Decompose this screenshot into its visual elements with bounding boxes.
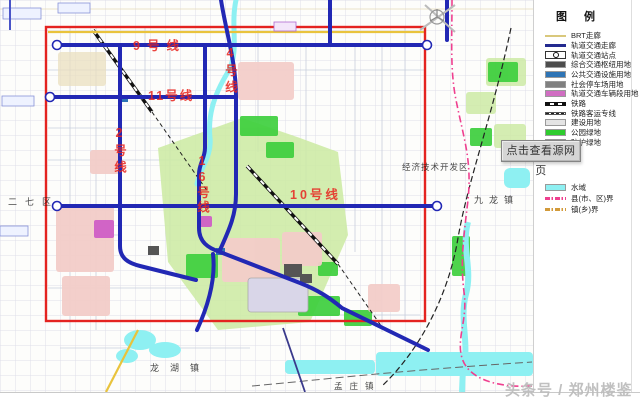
legend-item: 综合交通枢纽用地	[545, 61, 631, 69]
legend-swatch-icon	[545, 129, 566, 136]
place-label: 孟庄镇	[334, 380, 381, 392]
legend-item-label: 水域	[571, 182, 586, 193]
legend-swatch-icon	[545, 112, 566, 115]
legend-item-label: 镇(乡)界	[571, 204, 599, 215]
legend-item: BRT走廊	[545, 32, 631, 40]
legend-item: 轨道交通站点	[545, 51, 631, 59]
legend-swatch-icon	[545, 119, 566, 126]
legend-item: 轨道交通车辆段用地	[545, 90, 631, 98]
metro-line-label: 10号线	[290, 184, 341, 203]
legend-swatch-icon	[545, 90, 566, 97]
legend-swatch-icon	[545, 208, 566, 211]
legend-item: 公共交通设施用地	[545, 71, 631, 79]
place-label: 九龙镇	[474, 193, 519, 206]
legend-item-list: BRT走廊 轨道交通走廊 轨道交通站点 综合交通枢纽用地 公共交通设施用地 社会…	[534, 32, 631, 213]
watermark: 头条号 / 郑州楼鉴	[505, 379, 633, 400]
legend-swatch-icon	[545, 71, 566, 78]
legend-item: 铁路	[545, 100, 631, 108]
legend-item-label: 县(市、区)界	[571, 193, 614, 204]
legend-swatch-icon	[545, 44, 566, 47]
legend-swatch-icon	[545, 35, 566, 37]
view-source-tooltip[interactable]: 点击查看源网页	[501, 140, 581, 162]
legend-item: 镇(乡)界	[545, 206, 631, 214]
legend-swatch-icon	[545, 61, 566, 68]
legend-swatch-icon	[545, 81, 566, 88]
metro-line-label: 9号线	[133, 35, 186, 54]
legend-item: 水域	[545, 184, 631, 192]
metro-line-label: 16号线	[193, 154, 212, 215]
legend-item: 轨道交通走廊	[545, 42, 631, 50]
legend-swatch-icon	[545, 184, 566, 191]
place-label: 龙湖镇	[150, 361, 210, 374]
legend-item: 公园绿地	[545, 129, 631, 137]
legend-swatch-icon	[545, 51, 566, 59]
legend-panel: 图 例 BRT走廊 轨道交通走廊 轨道交通站点 综合交通枢纽用地 公共交通设施用…	[533, 0, 632, 392]
legend-swatch-icon	[545, 197, 566, 200]
place-label: 二七区	[8, 195, 59, 208]
metro-line-label: 11号线	[148, 85, 194, 104]
metro-line-label: 2号线	[110, 126, 129, 177]
legend-item: 社会停车场用地	[545, 80, 631, 88]
legend-item: 建设用地	[545, 119, 631, 127]
legend-item: 县(市、区)界	[545, 195, 631, 203]
map-graphic	[0, 0, 533, 392]
metro-line-label: 4号线	[221, 46, 240, 97]
map-screenshot: 9号线 4号线 11号线 2号线 16号线 10号线 二七区 经济技术开发区 九…	[0, 0, 640, 406]
map-canvas[interactable]: 9号线 4号线 11号线 2号线 16号线 10号线 二七区 经济技术开发区 九…	[0, 0, 533, 392]
legend-title: 图 例	[556, 8, 631, 24]
place-label: 经济技术开发区	[402, 161, 469, 173]
legend-item: 铁路客运专线	[545, 110, 631, 118]
legend-swatch-icon	[545, 102, 566, 106]
station-dot-icon	[553, 52, 559, 58]
